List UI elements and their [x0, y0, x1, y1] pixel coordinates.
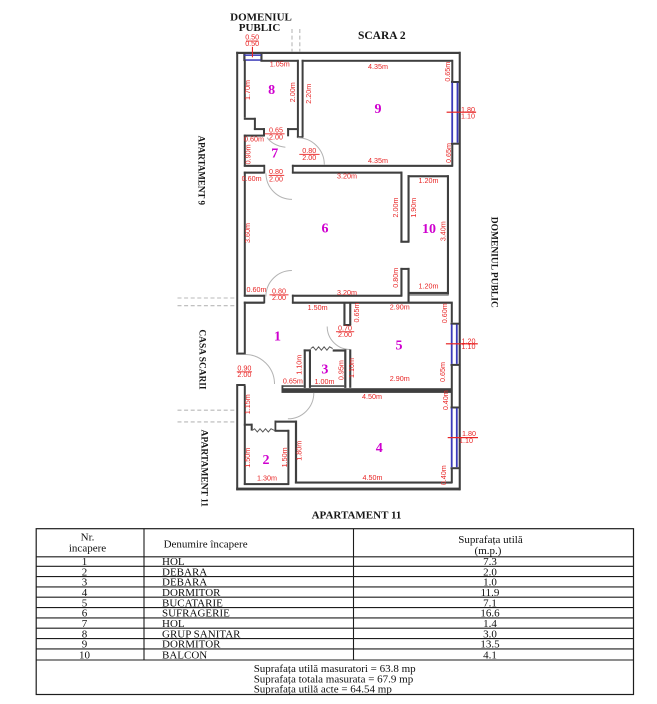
svg-text:9: 9	[375, 102, 382, 117]
svg-text:1.30m: 1.30m	[257, 473, 277, 482]
svg-text:APARTAMENT 11: APARTAMENT 11	[199, 430, 209, 508]
svg-text:4.35m: 4.35m	[368, 62, 388, 71]
svg-text:4.50m: 4.50m	[363, 473, 383, 482]
svg-text:0.65m: 0.65m	[283, 377, 303, 386]
svg-text:1.10m: 1.10m	[347, 358, 356, 378]
svg-text:2: 2	[263, 453, 270, 468]
svg-text:CASA SCARII: CASA SCARII	[197, 329, 207, 390]
svg-text:0.65m: 0.65m	[438, 362, 447, 382]
svg-text:Suprafața utilă acte = 64.54 m: Suprafața utilă acte = 64.54 mp	[254, 684, 393, 696]
svg-text:4.35m: 4.35m	[368, 156, 388, 165]
svg-text:0.65m: 0.65m	[444, 143, 453, 163]
svg-text:1.10: 1.10	[462, 342, 476, 351]
svg-text:0.65m: 0.65m	[352, 303, 361, 323]
svg-text:2.00: 2.00	[338, 330, 352, 339]
svg-text:3.60m: 3.60m	[243, 223, 252, 243]
svg-text:1.70m: 1.70m	[243, 80, 252, 100]
svg-text:6: 6	[322, 222, 329, 237]
svg-text:2.90m: 2.90m	[390, 302, 410, 311]
svg-text:2.20m: 2.20m	[304, 84, 313, 104]
svg-text:SCARA 2: SCARA 2	[358, 30, 406, 42]
svg-text:1.20m: 1.20m	[419, 176, 439, 185]
svg-text:5: 5	[396, 338, 403, 353]
svg-text:APARTAMENT 9: APARTAMENT 9	[197, 136, 207, 206]
svg-text:0.60m: 0.60m	[244, 135, 264, 144]
svg-text:0.60m: 0.60m	[247, 285, 267, 294]
svg-text:1.50m: 1.50m	[308, 303, 328, 312]
svg-text:1.15m: 1.15m	[243, 394, 252, 414]
svg-text:(m.p.): (m.p.)	[475, 545, 502, 557]
svg-text:1.10: 1.10	[459, 436, 473, 445]
svg-text:3.20m: 3.20m	[337, 172, 357, 181]
svg-text:1.90m: 1.90m	[409, 198, 418, 218]
svg-text:2.00: 2.00	[269, 133, 283, 142]
svg-text:2.00: 2.00	[272, 293, 286, 302]
svg-text:3: 3	[321, 363, 328, 378]
svg-text:0.65m: 0.65m	[443, 62, 452, 82]
svg-text:BALCON: BALCON	[162, 649, 207, 661]
svg-text:7: 7	[271, 146, 278, 161]
svg-text:4: 4	[376, 441, 383, 456]
svg-text:2.90m: 2.90m	[390, 374, 410, 383]
svg-text:1.10m: 1.10m	[295, 355, 304, 375]
svg-text:1.50m: 1.50m	[243, 448, 252, 468]
svg-text:0.50: 0.50	[245, 39, 259, 48]
svg-text:2.00: 2.00	[237, 370, 251, 379]
svg-text:0.40m: 0.40m	[439, 465, 448, 485]
svg-text:10: 10	[422, 222, 436, 237]
svg-text:2.00m: 2.00m	[391, 198, 400, 218]
svg-text:0.40m: 0.40m	[441, 390, 450, 410]
svg-text:2.00: 2.00	[269, 175, 283, 184]
svg-text:2.00m: 2.00m	[288, 82, 297, 102]
svg-text:2.00: 2.00	[302, 153, 316, 162]
svg-text:1.20m: 1.20m	[419, 281, 439, 290]
svg-text:APARTAMENT 11: APARTAMENT 11	[312, 509, 402, 521]
svg-text:4.50m: 4.50m	[362, 392, 382, 401]
svg-text:1: 1	[274, 329, 281, 344]
svg-text:DOMENIUL PUBLIC: DOMENIUL PUBLIC	[489, 217, 499, 308]
svg-text:0.60m: 0.60m	[440, 303, 449, 323]
svg-text:3.20m: 3.20m	[337, 288, 357, 297]
svg-text:Denumire încapere: Denumire încapere	[164, 538, 248, 550]
svg-text:1.80m: 1.80m	[294, 441, 303, 461]
svg-text:4.1: 4.1	[483, 649, 497, 661]
svg-text:0.60m: 0.60m	[242, 174, 262, 183]
svg-text:10: 10	[79, 649, 91, 661]
svg-text:1.10: 1.10	[461, 112, 475, 121]
svg-text:incapere: incapere	[69, 542, 106, 554]
svg-text:0.90m: 0.90m	[243, 144, 252, 164]
svg-text:1.50m: 1.50m	[280, 447, 289, 467]
svg-text:1.00m: 1.00m	[315, 377, 335, 386]
svg-text:3.40m: 3.40m	[438, 221, 447, 241]
svg-text:0.80m: 0.80m	[391, 268, 400, 288]
svg-text:0.95m: 0.95m	[336, 360, 345, 380]
svg-text:8: 8	[268, 83, 275, 98]
svg-text:1.05m: 1.05m	[270, 59, 290, 68]
